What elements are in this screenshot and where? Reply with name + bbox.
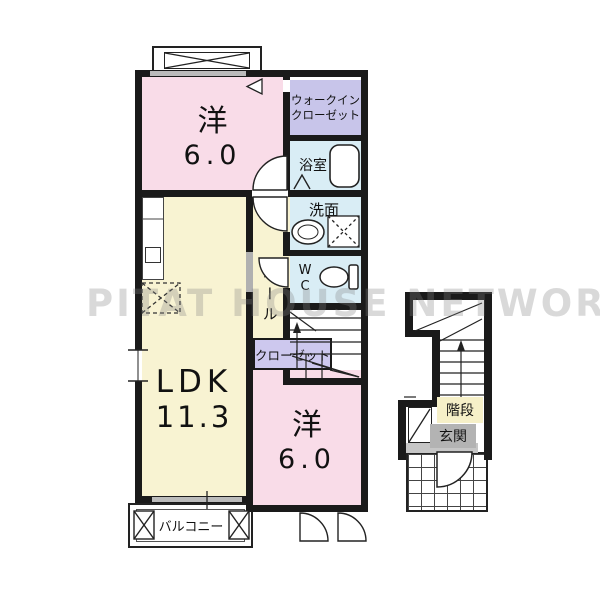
porch-tiles bbox=[406, 452, 488, 512]
entrance-label: 玄関 bbox=[430, 424, 476, 448]
room-bedroom-bottom: 洋 6.0 bbox=[253, 370, 361, 505]
window-balcony-icon bbox=[152, 497, 242, 502]
toilet-label-w: W bbox=[299, 263, 312, 279]
wall bbox=[283, 250, 368, 256]
washroom-label: 洗面 bbox=[300, 200, 348, 218]
wall bbox=[432, 330, 440, 407]
wall bbox=[246, 505, 368, 512]
wic-label-line2: クローゼット bbox=[291, 108, 360, 123]
ldk-name: LDK bbox=[156, 364, 232, 400]
floor-plan: 洋 6.0 ウォークイン クローゼット 浴室 洗面 W C ホール LDK 11… bbox=[0, 0, 600, 600]
room-size: 6.0 bbox=[184, 140, 242, 171]
walk-in-closet: ウォークイン クローゼット bbox=[290, 80, 361, 135]
wall bbox=[246, 197, 253, 512]
window-top-icon bbox=[150, 71, 246, 76]
wall bbox=[283, 92, 290, 190]
ldk-size: 11.3 bbox=[156, 400, 233, 434]
wall bbox=[398, 400, 406, 460]
room-bedroom-top: 洋 6.0 bbox=[142, 77, 283, 190]
room-name: 洋 bbox=[198, 96, 228, 140]
wall bbox=[288, 190, 368, 197]
room-name: 洋 bbox=[292, 400, 322, 444]
door-arc-bottom-doors bbox=[300, 513, 366, 541]
room-size: 6.0 bbox=[278, 444, 336, 475]
wic-label-line1: ウォークイン bbox=[291, 93, 360, 108]
wall bbox=[283, 232, 290, 250]
balcony-label: バルコニー bbox=[156, 513, 226, 537]
stairs-label: 階段 bbox=[437, 397, 483, 423]
ac-unit-inner bbox=[164, 52, 250, 69]
wall bbox=[283, 378, 368, 385]
wall bbox=[283, 70, 290, 80]
bathroom-label: 浴室 bbox=[293, 156, 333, 174]
kitchen-counter-icon bbox=[142, 197, 164, 280]
entrance-door-open-icon bbox=[408, 407, 432, 443]
window-left-icon bbox=[135, 350, 142, 381]
watermark: PITAT HOUSE NETWORK bbox=[86, 282, 600, 325]
closet: クローゼット bbox=[253, 338, 332, 370]
wall bbox=[290, 135, 361, 141]
kitchen-sink-icon bbox=[145, 247, 161, 263]
wall bbox=[135, 190, 252, 197]
